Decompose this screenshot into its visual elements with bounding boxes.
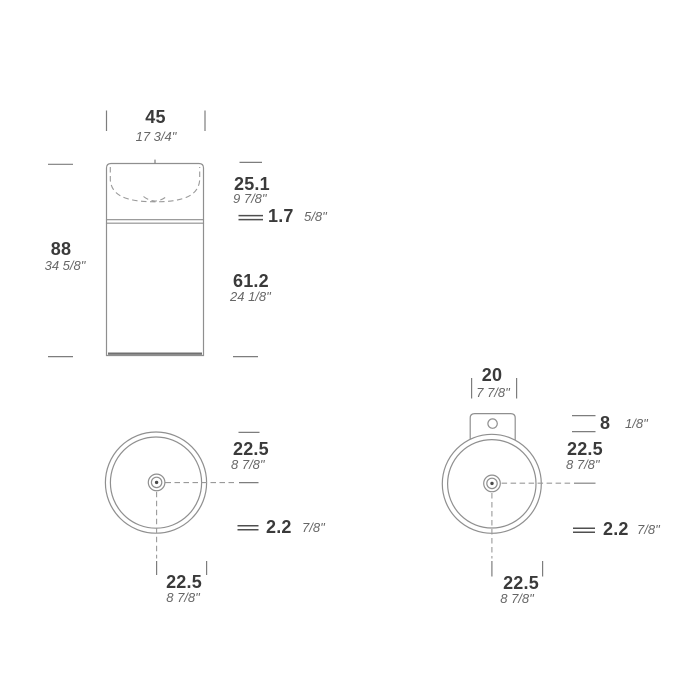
left-radius-vertical-imperial: 8 7/8" xyxy=(151,591,215,604)
right-drain-center-dot xyxy=(490,482,493,485)
rim-thickness-symbol xyxy=(239,216,264,220)
right-wall-thickness-value: 2.2 xyxy=(603,520,629,538)
rim-thickness-imperial: 5/8" xyxy=(304,210,327,223)
right-wall-thickness-imperial: 7/8" xyxy=(637,523,660,536)
left-wall-thickness-symbol xyxy=(238,526,259,530)
rim-thickness-value: 1.7 xyxy=(268,207,294,225)
left-wall-thickness-imperial: 7/8" xyxy=(302,521,325,534)
left-radius-horizontal-imperial: 8 7/8" xyxy=(231,458,265,471)
front-height-imperial: 34 5/8" xyxy=(25,259,105,272)
pedestal-body-outline xyxy=(107,164,204,356)
right-radius-vertical-value: 22.5 xyxy=(495,574,547,592)
right-radius-horizontal-value: 22.5 xyxy=(567,440,603,458)
basin-hidden-outline xyxy=(110,167,199,202)
drawing-linework xyxy=(0,0,700,700)
technical-drawing-page: 45 17 3/4" 88 34 5/8" 25.1 9 7/8" 1.7 5/… xyxy=(0,0,700,700)
front-width-value: 45 xyxy=(129,108,182,126)
bracket-height-value: 8 xyxy=(600,414,610,432)
bracket-height-imperial: 1/8" xyxy=(625,417,648,430)
front-view-drawing xyxy=(48,111,263,357)
front-width-imperial: 17 3/4" xyxy=(116,130,196,143)
left-radius-vertical-value: 22.5 xyxy=(158,573,210,591)
right-radius-horizontal-imperial: 8 7/8" xyxy=(566,458,600,471)
bracket-width-imperial: 7 7/8" xyxy=(460,386,526,399)
bracket-mount-hole xyxy=(488,419,497,428)
right-radius-vertical-imperial: 8 7/8" xyxy=(488,592,546,605)
basin-drain-hidden-curve xyxy=(144,197,167,202)
pedestal-height-imperial: 24 1/8" xyxy=(230,290,271,303)
bracket-width-value: 20 xyxy=(466,366,518,384)
basin-height-imperial: 9 7/8" xyxy=(233,192,267,205)
pedestal-height-value: 61.2 xyxy=(233,272,269,290)
left-drain-center-dot xyxy=(155,481,158,484)
left-radius-horizontal-value: 22.5 xyxy=(233,440,269,458)
front-height-value: 88 xyxy=(21,240,101,258)
right-wall-thickness-symbol xyxy=(573,528,595,532)
top-view-right-drawing xyxy=(442,378,595,577)
left-wall-thickness-value: 2.2 xyxy=(266,518,292,536)
